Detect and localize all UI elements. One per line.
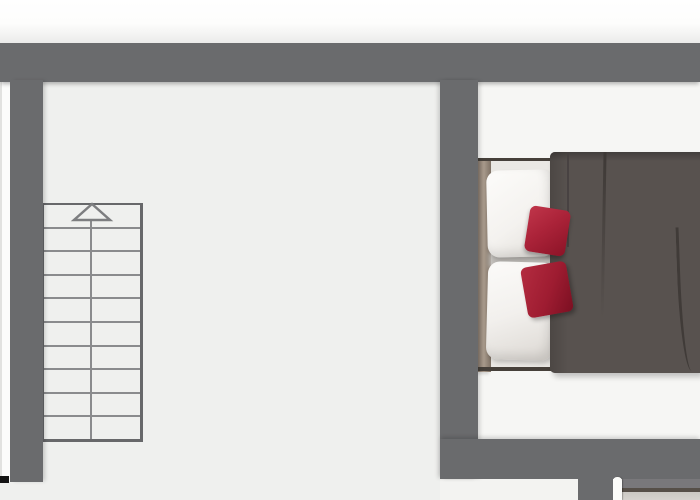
- stair-step: [44, 394, 140, 418]
- stair-step: [44, 417, 140, 439]
- stair-step: [44, 276, 140, 300]
- lower-wall-stub: [578, 479, 613, 500]
- divider-wall: [440, 80, 478, 479]
- top-wall: [0, 43, 700, 82]
- stair-step: [44, 299, 140, 323]
- duvet: [550, 152, 700, 373]
- stair-step: [44, 252, 140, 276]
- exterior-edge-line: [0, 82, 2, 482]
- double-bed[interactable]: [478, 150, 700, 376]
- left-wall: [10, 80, 43, 482]
- duvet-crease-middle: [600, 152, 606, 328]
- staircase[interactable]: [42, 203, 143, 442]
- stair-step: [44, 229, 140, 253]
- sideboard[interactable]: [622, 479, 700, 500]
- closet-strip[interactable]: [393, 85, 438, 432]
- black-corner-mark: [0, 476, 9, 483]
- stairs-up-arrow-icon: [70, 202, 114, 223]
- bed-frame-top-edge: [478, 158, 555, 161]
- left-room-floor-bottom: [0, 482, 43, 500]
- red-pillow-bottom: [520, 260, 574, 318]
- floor-plan-canvas: [0, 0, 700, 500]
- stair-step: [44, 370, 140, 394]
- stair-step: [44, 347, 140, 371]
- lower-room-floor: [440, 479, 578, 500]
- duvet-top-fold: [550, 152, 700, 161]
- duvet-crease-right: [675, 227, 696, 371]
- exterior-area-top: [0, 0, 700, 43]
- bottom-wall: [440, 439, 700, 479]
- stair-step: [44, 323, 140, 347]
- red-pillow-top: [524, 205, 572, 257]
- staircase-center-divider: [90, 220, 92, 439]
- door-leaf[interactable]: [613, 477, 622, 500]
